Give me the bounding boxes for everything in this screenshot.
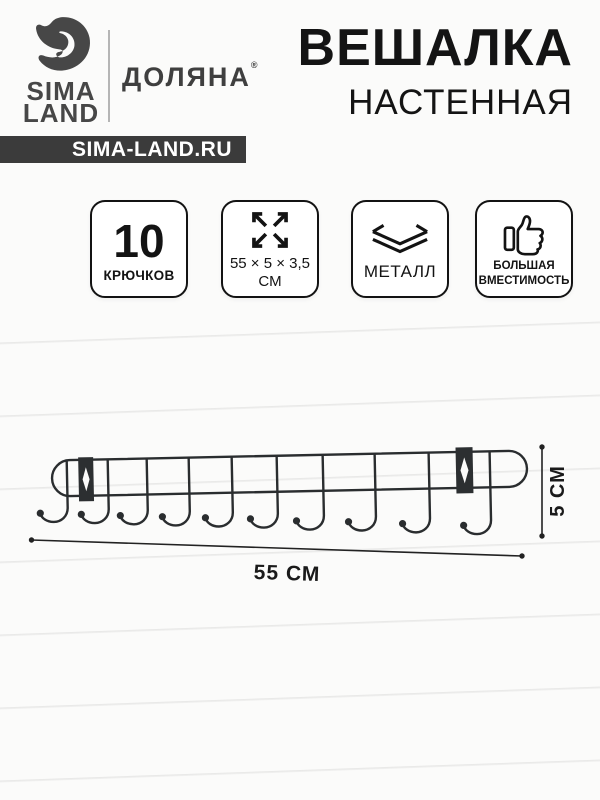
hook-wire: [295, 455, 324, 530]
dimension-endpoint: [29, 537, 34, 542]
registered-mark: ®: [251, 60, 258, 70]
badge-material: МЕТАЛЛ: [351, 200, 449, 298]
width-dimension-line: [32, 540, 523, 556]
hook-wire: [401, 453, 430, 533]
wall-panel-line: [0, 686, 600, 710]
title-line-2: НАСТЕННАЯ: [298, 85, 573, 120]
hooks-count-value: 10: [113, 218, 164, 264]
site-url-text: SIMA-LAND.RU: [72, 138, 232, 162]
wall-panel-line: [0, 321, 600, 345]
expand-arrows-icon: [248, 208, 292, 252]
dimensions-line-2: СМ: [230, 273, 310, 291]
product-card: { "header": { "logo": { "line1": "SIMA",…: [0, 0, 600, 800]
capacity-text: БОЛЬШАЯ ВМЕСТИМОСТЬ: [479, 259, 570, 289]
hanger-product-image: 55 СМ 5 СМ: [0, 420, 600, 605]
material-label: МЕТАЛЛ: [364, 262, 436, 282]
dimension-endpoint: [539, 444, 544, 449]
capacity-line-1: БОЛЬШАЯ: [479, 259, 570, 274]
product-title: ВЕШАЛКА НАСТЕННАЯ: [298, 22, 573, 120]
dimensions-text: 55 × 5 × 3,5 СМ: [230, 255, 310, 290]
hook-wire: [347, 454, 376, 531]
wall-panel-line: [0, 613, 600, 637]
wall-panel-line: [0, 394, 600, 418]
height-dimension: 5 СМ: [539, 444, 569, 538]
width-dimension-label: 55 СМ: [253, 561, 320, 586]
brand-text: ДОЛЯНА: [122, 62, 251, 92]
sima-land-bird-icon: [30, 12, 94, 76]
hooks-count-label: КРЮЧКОВ: [103, 268, 174, 283]
dimensions-line-1: 55 × 5 × 3,5: [230, 255, 310, 273]
width-dimension: 55 СМ: [29, 537, 525, 586]
capacity-line-2: ВМЕСТИМОСТЬ: [479, 274, 570, 289]
badge-capacity: БОЛЬШАЯ ВМЕСТИМОСТЬ: [475, 200, 573, 298]
thumb-up-icon: [501, 210, 547, 256]
dimension-endpoint: [539, 533, 544, 538]
logo-line-2: LAND: [22, 102, 100, 124]
dolyana-brand: ДОЛЯНА®: [122, 60, 258, 93]
site-url-badge: SIMA-LAND.RU: [0, 136, 246, 163]
hanger-rail-group: [35, 446, 528, 543]
logo-divider: [108, 30, 110, 122]
layers-icon: [370, 217, 430, 257]
wall-panel-line: [0, 759, 600, 783]
hook-balls: [37, 501, 468, 538]
dimension-endpoint: [519, 553, 524, 558]
badge-hooks-count: 10 КРЮЧКОВ: [90, 200, 188, 298]
sima-land-logo: SIMA LAND: [22, 80, 100, 124]
title-line-1: ВЕШАЛКА: [298, 22, 573, 74]
badge-dimensions: 55 × 5 × 3,5 СМ: [221, 200, 319, 298]
height-dimension-label: 5 СМ: [547, 465, 569, 517]
